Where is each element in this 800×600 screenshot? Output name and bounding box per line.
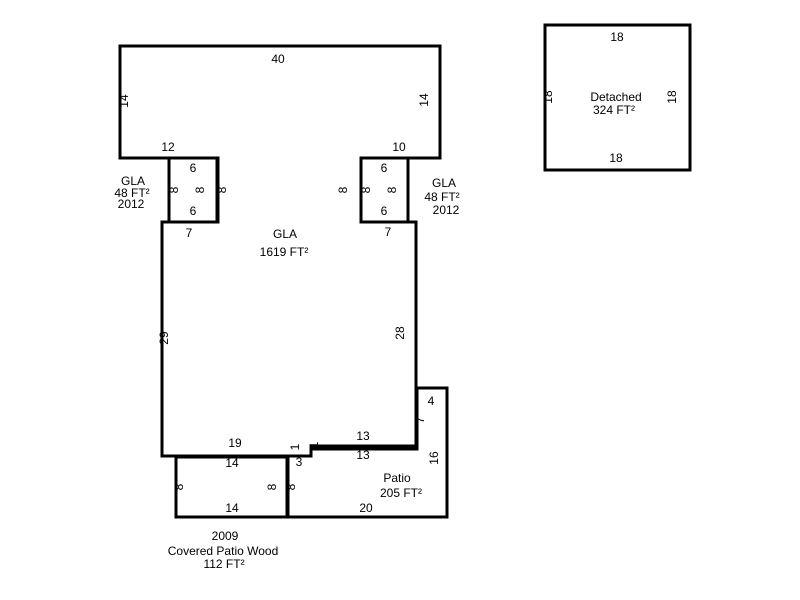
gla-caption-line1: GLA [273,227,297,241]
patio-caption-line2: 205 FT² [380,486,422,500]
addition-right-caption-line2: 48 FT² [424,190,459,204]
dim-gla-bottom-left-upper: 12 [161,140,175,154]
dim-gla-step: 1 [288,443,302,450]
dim-gla-strip-west: 8 [215,186,229,193]
dim-gla-shoulder-left: 7 [186,226,193,240]
addition-right-caption-line1: GLA [432,176,456,190]
dim-gla-bottom-right-upper: 10 [392,140,406,154]
dim-detached-right: 18 [665,90,679,104]
dim-detached-left: 18 [541,90,555,104]
gla-caption-line2: 1619 FT² [260,245,309,259]
dim-addition-right-left: 8 [359,186,373,193]
dim-gla-shoulder-right: 7 [385,225,392,239]
addition-left-caption-line3: 2012 [118,197,145,211]
dim-detached-top: 18 [610,30,624,44]
dim-gla-top: 40 [271,52,285,66]
dim-patio-bump-top: 4 [428,394,435,408]
dim-addition-right-bottom: 6 [381,204,388,218]
dim-addition-right-top: 6 [381,161,388,175]
covered-patio-caption-line1: 2009 [212,529,239,543]
dim-gla-right-upper: 14 [417,93,431,107]
dim-patio-step: 1 [307,441,321,448]
dim-addition-left-left: 8 [167,186,181,193]
dim-patio-top: 13 [356,448,370,462]
floorplan-sketch: 40 14 14 12 10 8 8 7 7 29 28 13 1 19 GLA… [0,0,800,600]
patio-caption-line1: Patio [383,471,411,485]
detached-caption-line1: Detached [590,90,641,104]
addition-right-caption-line3: 2012 [433,203,460,217]
dim-addition-left-bottom: 6 [190,204,197,218]
dim-covered-patio-bottom: 14 [225,501,239,515]
dim-gla-left-lower: 29 [157,331,171,345]
dim-addition-left-right: 8 [193,186,207,193]
dim-patio-west-upper: 7 [413,416,427,423]
dim-covered-patio-top: 14 [225,456,239,470]
dim-covered-patio-left: 8 [172,483,186,490]
sketch-canvas: 40 14 14 12 10 8 8 7 7 29 28 13 1 19 GLA… [0,0,800,600]
covered-patio-caption-line3: 112 FT² [203,557,244,571]
dim-addition-left-top: 6 [190,161,197,175]
dim-gla-right-lower: 28 [393,326,407,340]
dim-patio-bottom: 20 [359,501,373,515]
dim-gla-strip-east: 8 [336,186,350,193]
dim-addition-right-right: 8 [385,186,399,193]
detached-caption-line2: 324 FT² [593,103,635,117]
dim-gla-bottom-left: 19 [228,436,242,450]
dim-patio-west-lower: 8 [284,483,298,490]
dim-gla-left-upper: 14 [117,94,131,108]
dim-covered-patio-right: 8 [265,483,279,490]
dim-patio-top-left: 3 [296,455,303,469]
dim-patio-east: 16 [427,451,441,465]
covered-patio-caption-line2: Covered Patio Wood [168,544,279,558]
dim-gla-bottom-right: 13 [356,429,370,443]
dim-detached-bottom: 18 [609,151,623,165]
